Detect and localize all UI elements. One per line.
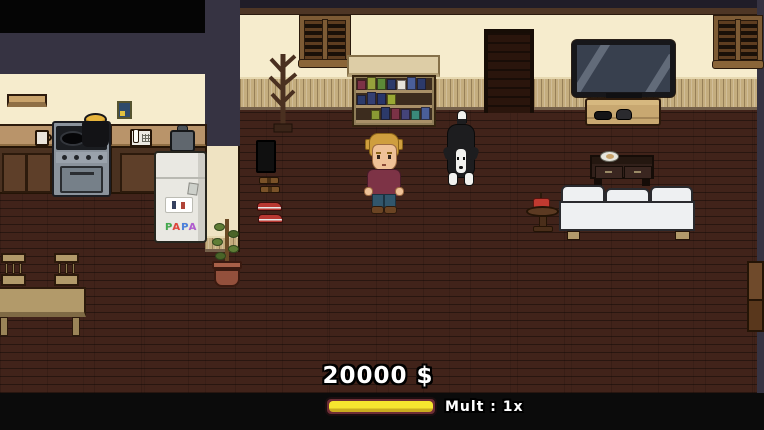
- stove-knob: [98, 155, 103, 160]
- ceiling-band: [240, 0, 757, 8]
- player-eyebrow: [376, 152, 381, 154]
- book: [397, 80, 406, 90]
- papa-letter: A: [172, 222, 181, 233]
- book: [357, 80, 366, 90]
- fridge-papa-text: PAPA: [165, 215, 201, 227]
- slippers: [259, 177, 281, 194]
- wall-picture: [117, 101, 132, 119]
- couch-leg: [675, 231, 690, 240]
- potted-plant: [209, 219, 245, 289]
- fridge: PAPA: [154, 151, 207, 243]
- money-counter: 20000 $: [278, 363, 478, 391]
- drawer-handle: [634, 171, 641, 173]
- stool-leg: [65, 263, 68, 274]
- window-shutters-left: [300, 16, 350, 64]
- furniture-upper: [747, 261, 764, 301]
- drawer-handle: [605, 171, 612, 173]
- stool-leg: [72, 263, 75, 274]
- cabinet-door: [2, 153, 27, 193]
- tv-cabinet: [585, 98, 661, 126]
- book: [367, 92, 376, 105]
- stool-leg: [19, 263, 22, 274]
- bookshelf: [347, 55, 440, 127]
- dog-paw: [465, 173, 473, 185]
- wall-shelf: [7, 94, 47, 107]
- coffee-table-drawer: [595, 166, 623, 179]
- coat-rack-icon: [264, 42, 302, 134]
- dog-paw: [449, 173, 457, 185]
- oven-door: [60, 166, 103, 193]
- dog-eye: [463, 157, 465, 160]
- plate-food: [606, 154, 614, 159]
- progress-fill: [329, 401, 433, 412]
- book: [371, 110, 380, 120]
- fridge-drawing: [165, 197, 193, 213]
- window-sill: [713, 61, 763, 68]
- book: [381, 107, 390, 120]
- bookshelf-top: [347, 55, 440, 77]
- cropped-furniture-right: [747, 261, 764, 332]
- doorway: [484, 29, 534, 113]
- cooking-pot: [82, 115, 109, 150]
- burner: [62, 133, 84, 144]
- stool-base: [54, 274, 79, 286]
- book: [367, 77, 376, 90]
- dog-nose: [459, 166, 463, 169]
- entry-mat: [256, 140, 276, 173]
- dog-eye: [457, 157, 459, 160]
- book: [387, 79, 396, 90]
- dog[interactable]: [443, 111, 479, 196]
- drawing-figure: [172, 201, 176, 209]
- stool-leg: [12, 263, 15, 274]
- slipper: [259, 177, 279, 184]
- player-eyebrow: [387, 152, 392, 154]
- void-black: [0, 0, 205, 33]
- window-sill: [299, 60, 351, 67]
- book: [417, 78, 426, 90]
- plate: [600, 151, 619, 162]
- stove-knob: [62, 155, 67, 160]
- player-hand: [396, 188, 403, 195]
- book: [391, 108, 400, 120]
- oven-handle: [70, 172, 94, 175]
- remote-control: [595, 112, 611, 119]
- player-face: [373, 145, 396, 170]
- plant-leaf: [228, 245, 239, 253]
- picture-detail: [120, 111, 125, 116]
- table-leg: [0, 317, 8, 336]
- tv-screen: [577, 45, 670, 92]
- stool: [54, 253, 79, 287]
- book: [387, 94, 396, 105]
- bookshelf-shelf-bottom: [356, 108, 432, 123]
- stool-seat: [1, 253, 26, 263]
- cabinet-door: [26, 153, 52, 193]
- stool-leg: [5, 263, 8, 274]
- couch: [559, 185, 695, 239]
- game-controller: [617, 110, 631, 119]
- plant-pot-rim: [212, 261, 242, 269]
- window-shutters-right: [714, 16, 762, 65]
- book: [401, 109, 410, 120]
- plant-stem: [225, 219, 229, 267]
- stove-knob: [86, 155, 91, 160]
- sneakers: [257, 202, 284, 226]
- kitchen-upper-wall: [0, 33, 205, 74]
- plant-leaf: [212, 238, 223, 246]
- furniture-lower: [747, 301, 764, 332]
- dog-face-blaze: [456, 149, 466, 173]
- multiplier-label: Mult : 1x: [445, 399, 535, 417]
- wall-top-trim: [240, 8, 757, 15]
- couch-leg: [567, 231, 580, 240]
- progress-bar: [325, 397, 437, 416]
- drawing-figure: [181, 202, 185, 209]
- coffee-table: [590, 155, 654, 179]
- papa-letter: P: [181, 222, 188, 233]
- coat-rack: [264, 42, 302, 134]
- plant-leaf: [228, 230, 239, 238]
- player-hand: [365, 188, 372, 195]
- window-divider: [323, 20, 327, 60]
- stool: [1, 253, 26, 287]
- plant-pot: [214, 269, 240, 287]
- book: [411, 110, 420, 120]
- player-mouth: [382, 164, 386, 166]
- papa-letter: A: [189, 222, 198, 233]
- tv: [572, 40, 675, 97]
- pot-body: [82, 121, 109, 147]
- coffee-table-drawer: [624, 166, 652, 179]
- side-table: [526, 190, 559, 236]
- player-shoe: [372, 207, 383, 213]
- sneaker: [258, 214, 283, 223]
- bookshelf-shelf-top: [356, 78, 432, 93]
- dining-table: [0, 287, 86, 337]
- phone-handset: [133, 129, 139, 143]
- player-shoe: [385, 207, 396, 213]
- phone-keypad: [142, 134, 150, 142]
- stove-knob: [74, 155, 79, 160]
- tv-reflection: [634, 54, 670, 92]
- sneaker: [257, 202, 282, 211]
- plant-leaf: [215, 252, 226, 260]
- book: [377, 78, 386, 90]
- stool-leg: [58, 263, 61, 274]
- kettle-body: [170, 130, 195, 152]
- book: [357, 95, 366, 105]
- book: [421, 107, 430, 120]
- stool-seat: [54, 253, 79, 263]
- stove-knob-panel: [56, 152, 107, 163]
- table-top: [0, 287, 86, 317]
- fridge-door-seam: [156, 177, 205, 179]
- bookshelf-body: [352, 75, 436, 127]
- slipper: [260, 186, 280, 193]
- progress-track: [329, 401, 433, 412]
- window-divider: [736, 20, 740, 61]
- table-leg: [72, 317, 80, 336]
- telephone: [130, 129, 152, 147]
- player-eye: [388, 155, 391, 159]
- tv-reflection: [577, 45, 612, 92]
- game-viewport[interactable]: PAPA: [0, 0, 764, 430]
- side-table-base: [533, 226, 553, 232]
- book: [377, 93, 386, 105]
- bookshelf-shelf-middle: [356, 93, 432, 108]
- kettle: [170, 125, 195, 153]
- fridge-magnet: [187, 182, 199, 195]
- player-eye: [377, 155, 380, 159]
- plant-leaf: [214, 223, 225, 231]
- book: [407, 77, 416, 90]
- couch-body: [559, 201, 695, 231]
- mug: [35, 130, 49, 146]
- divider-wall: [205, 0, 240, 148]
- stool-base: [1, 274, 26, 286]
- kitchen-cabinet-left: [0, 146, 54, 194]
- player-character[interactable]: [364, 132, 404, 214]
